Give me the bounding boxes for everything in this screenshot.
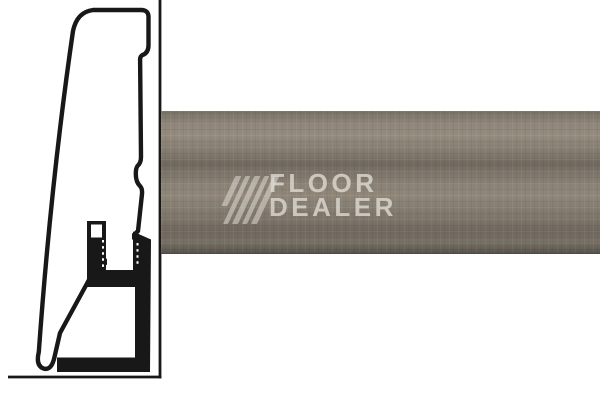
floordealer-watermark: FLOOR DEALER (161, 111, 600, 253)
clip-channel-interior (107, 214, 132, 269)
clip-notch (91, 225, 102, 238)
watermark-text: FLOOR DEALER (269, 172, 397, 219)
wood-plank-sample: FLOOR DEALER (161, 111, 600, 254)
profile-outline (38, 10, 149, 369)
watermark-line-dealer: DEALER (269, 196, 397, 220)
product-image: FLOOR DEALER (0, 0, 600, 400)
skirting-profile-diagram (0, 0, 166, 400)
